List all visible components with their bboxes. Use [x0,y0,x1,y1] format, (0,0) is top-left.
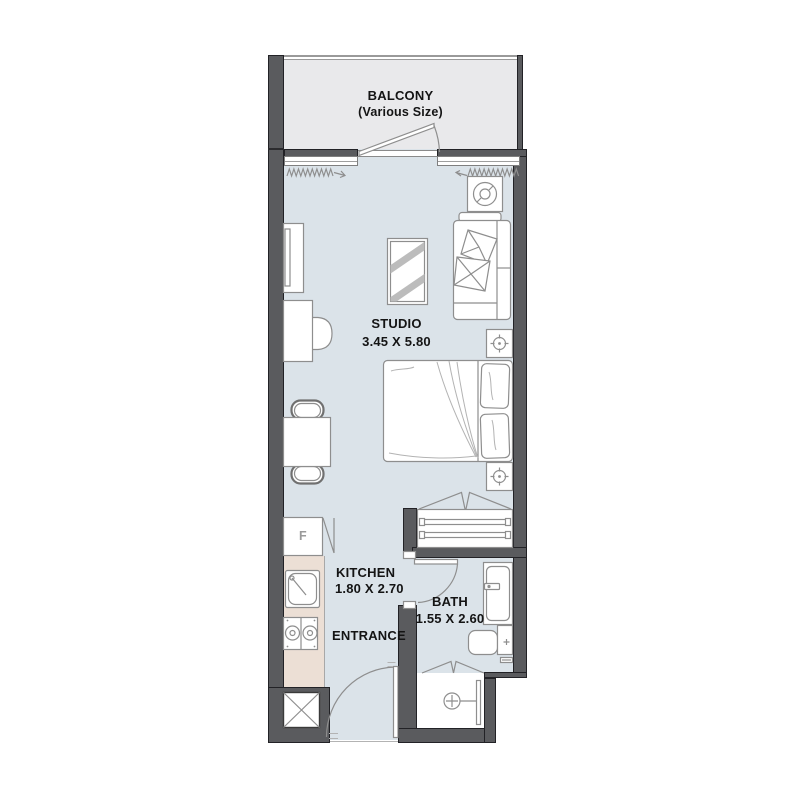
shower-icon [444,681,481,725]
nightstand-top-icon [487,330,513,358]
desk-icon [284,301,333,362]
fridge-icon [284,518,335,556]
floorplan-symbols [0,0,800,800]
wardrobe-icon [418,493,513,548]
curtain-right-icon [456,169,519,176]
kitchen-label: KITCHEN [336,565,395,580]
kitchen-sink-icon [286,571,320,608]
studio-label: STUDIO [314,316,479,331]
balcony-size-note: (Various Size) [284,105,517,119]
shower-door-icon [422,662,484,674]
bed-icon [384,361,513,462]
bath-dimensions: 1.55 X 2.60 [395,611,505,626]
balcony-label: BALCONY [284,88,517,103]
entrance-door-icon [327,663,399,742]
bath-label: BATH [395,594,505,609]
stove-icon [284,618,318,650]
fridge-label: F [299,529,307,543]
nightstand-bottom-icon [487,463,513,491]
entrance-label: ENTRANCE [332,628,406,643]
studio-dimensions: 3.45 X 5.80 [314,334,479,349]
tv-unit-icon [284,224,304,293]
toilet-icon [469,626,513,663]
sofa-icon [454,213,511,320]
balcony-door-icon [359,124,440,156]
lamp-table-icon [468,177,503,212]
service-shaft-icon [284,693,320,728]
kitchen-dimensions: 1.80 X 2.70 [335,581,404,596]
floor-plan: BALCONY (Various Size) STUDIO 3.45 X 5.8… [0,0,800,800]
curtain-left-icon [287,169,345,178]
dining-set-icon [284,401,331,484]
